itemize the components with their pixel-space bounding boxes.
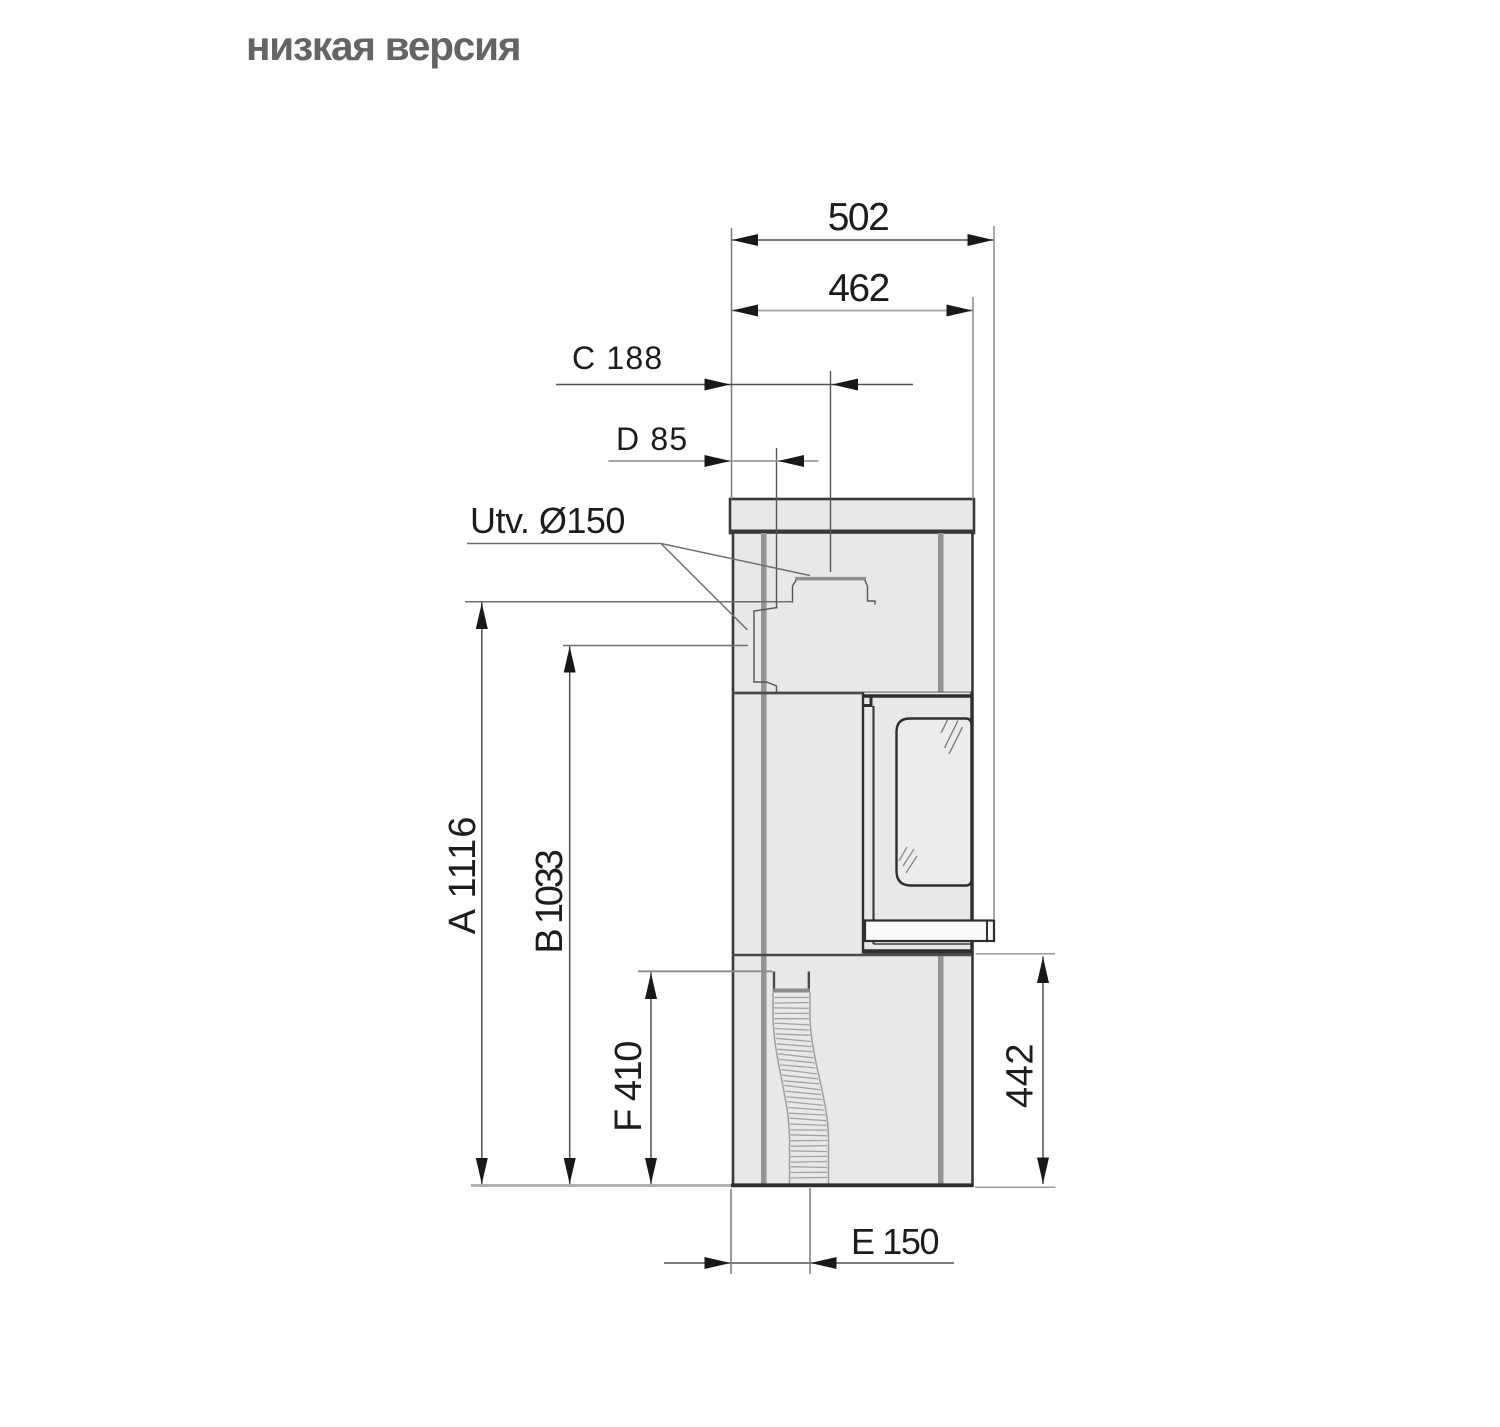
svg-text:B 1033: B 1033 — [529, 850, 571, 953]
svg-text:низкая версия: низкая версия — [246, 23, 520, 69]
svg-text:E 150: E 150 — [851, 1221, 938, 1262]
svg-text:462: 462 — [828, 267, 889, 310]
svg-text:A 1116: A 1116 — [442, 816, 484, 935]
svg-text:C 188: C 188 — [572, 340, 663, 376]
svg-text:502: 502 — [828, 196, 889, 239]
svg-text:Utv. Ø150: Utv. Ø150 — [470, 500, 625, 541]
svg-text:442: 442 — [1000, 1043, 1042, 1108]
svg-text:F 410: F 410 — [608, 1042, 650, 1132]
svg-text:D 85: D 85 — [616, 421, 688, 457]
